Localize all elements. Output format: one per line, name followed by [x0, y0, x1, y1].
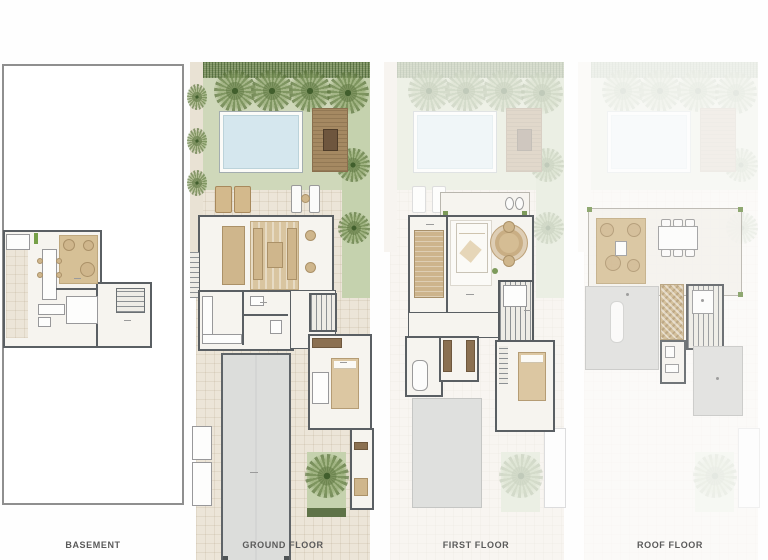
chair-icon — [37, 272, 43, 278]
bedroom-two — [439, 336, 479, 382]
terrace-chair-icon — [505, 197, 514, 210]
tiny-room-label — [48, 314, 54, 315]
drain-dot-icon — [626, 293, 629, 296]
sofa-icon — [627, 223, 641, 237]
skylight — [610, 301, 624, 343]
bathroom-fixture — [250, 296, 264, 306]
wardrobe — [466, 340, 475, 372]
outdoor-dining-table — [658, 226, 698, 250]
basement-kitchenette-island — [38, 317, 51, 327]
palm-tree-icon — [499, 454, 543, 498]
chair-icon — [685, 249, 695, 257]
sofa-icon — [63, 239, 75, 251]
master-bedroom — [450, 220, 492, 286]
tiny-room-label — [524, 310, 531, 311]
panel-roof-floor — [578, 62, 762, 505]
interior-wall — [242, 292, 244, 345]
tiny-room-label — [466, 294, 474, 295]
palm-tree-icon — [305, 454, 349, 498]
sun-lounger-icon — [215, 186, 232, 213]
cabinet-icon — [354, 442, 368, 450]
dressing-room — [414, 230, 444, 298]
chair-icon — [37, 258, 43, 264]
sun-lounger-icon — [309, 185, 320, 213]
sofa-icon — [627, 259, 640, 272]
sun-lounger-icon — [412, 186, 426, 213]
palm-tree-icon — [445, 70, 487, 112]
stair-landing — [692, 290, 714, 314]
plant-icon — [492, 268, 498, 274]
roof-slab-left — [585, 286, 659, 370]
sofa-icon — [83, 240, 94, 251]
pouf-icon — [305, 230, 316, 241]
tiny-room-label — [260, 302, 267, 303]
interior-wall — [446, 217, 448, 312]
sofa-icon — [287, 228, 297, 280]
dining-table — [222, 226, 245, 285]
kitchen-counter — [202, 334, 242, 344]
planter-icon — [738, 292, 743, 297]
armchair-icon — [503, 221, 515, 233]
tiny-room-label — [426, 224, 434, 225]
bathtub — [412, 360, 428, 391]
wood-deck-pergola — [312, 108, 348, 172]
bathroom — [405, 336, 443, 397]
panel-first-floor — [384, 62, 568, 505]
garage — [221, 353, 291, 560]
planter-icon — [738, 207, 743, 212]
wardrobe — [312, 338, 342, 348]
closet-shelves — [499, 346, 508, 384]
pergola-mosaic — [660, 284, 684, 340]
chair-icon — [56, 272, 62, 278]
armchair-icon — [80, 262, 95, 277]
palm-tree-icon — [408, 70, 450, 112]
tiny-room-label — [340, 362, 347, 363]
panel-ground-floor — [190, 62, 376, 505]
roof-plan-layer — [578, 62, 762, 505]
bush-icon — [187, 128, 207, 154]
outdoor-lounge-rug — [596, 218, 646, 284]
stairwell — [309, 293, 337, 332]
living-room-rug — [250, 221, 299, 290]
floor-plan-sheet: BASEMENT GROUND FLOOR FIRST FLOOR ROOF F… — [0, 0, 768, 560]
drain-dot-icon — [701, 299, 704, 302]
chair-icon — [673, 249, 683, 257]
side-table-icon — [301, 194, 310, 203]
bed — [331, 358, 359, 409]
tree-icon — [532, 212, 564, 244]
wardrobe — [443, 340, 452, 372]
armchair-icon — [503, 255, 515, 267]
basement-long-table — [42, 249, 57, 300]
wc-fixture — [665, 346, 675, 358]
wood-deck-pergola — [506, 108, 542, 172]
chair-icon — [56, 258, 62, 264]
ensuite-bathroom — [312, 372, 329, 404]
chair-icon — [685, 219, 695, 227]
sun-lounger-icon — [234, 186, 251, 213]
palm-tree-icon — [289, 70, 331, 112]
bush-icon — [187, 170, 207, 196]
upper-hallway — [408, 312, 502, 338]
side-utility-rooms — [350, 428, 374, 510]
coffee-table-icon — [267, 242, 283, 268]
planter-icon — [587, 207, 592, 212]
basement-wc — [66, 296, 98, 324]
floor-label-basement: BASEMENT — [2, 539, 184, 551]
palm-tree-icon — [483, 70, 525, 112]
sofa-icon — [605, 255, 621, 271]
tiny-room-label — [250, 472, 258, 473]
floor-label-ground-floor: GROUND FLOOR — [190, 539, 376, 551]
left-side-path — [384, 62, 397, 252]
panel-basement — [2, 64, 184, 505]
side-utility-rooms — [544, 428, 566, 508]
floor-label-first-floor: FIRST FLOOR — [384, 539, 568, 551]
garage-door-post — [223, 556, 228, 560]
family-lounge-round-rug — [490, 224, 528, 262]
stairwell — [498, 280, 534, 344]
deck-seating-icon — [323, 129, 338, 151]
basement-lounge-rug — [59, 235, 98, 284]
entry-room — [192, 426, 212, 460]
palm-tree-icon — [214, 70, 256, 112]
stair-landing — [503, 285, 527, 307]
bed — [518, 352, 546, 401]
floor-label-roof-floor: ROOF FLOOR — [578, 539, 762, 551]
basement-inner-wall — [56, 288, 98, 290]
sofa-icon — [600, 223, 614, 237]
garage-door-post — [284, 556, 289, 560]
basement-storage-room — [6, 234, 30, 250]
terrace-chair-icon — [515, 197, 524, 210]
tiny-room-label — [124, 320, 131, 321]
roof-wc — [660, 340, 686, 384]
basement-door-mark — [34, 233, 38, 244]
palm-tree-icon — [251, 70, 293, 112]
chair-icon — [661, 219, 671, 227]
basin-fixture — [665, 364, 679, 373]
swimming-pool — [414, 112, 496, 172]
garage-roof-slab — [412, 398, 482, 508]
bush-icon — [187, 84, 207, 110]
cabinet-icon — [354, 478, 368, 496]
bathroom-fixture — [270, 320, 282, 334]
basement-staircase — [116, 288, 145, 313]
courtyard-hedge — [307, 508, 346, 517]
coffee-table-icon — [615, 241, 627, 256]
stairwell — [686, 284, 724, 350]
sofa-icon — [253, 228, 263, 280]
chair-icon — [673, 219, 683, 227]
interior-wall — [244, 314, 288, 316]
pouf-icon — [305, 262, 316, 273]
drain-dot-icon — [716, 377, 719, 380]
deck-seating-icon — [517, 129, 532, 151]
roof-slab-right — [693, 346, 743, 416]
swimming-pool — [220, 112, 302, 172]
tree-icon — [338, 212, 370, 244]
tiny-room-label — [74, 278, 81, 279]
entry-room — [192, 462, 212, 506]
chair-icon — [661, 249, 671, 257]
